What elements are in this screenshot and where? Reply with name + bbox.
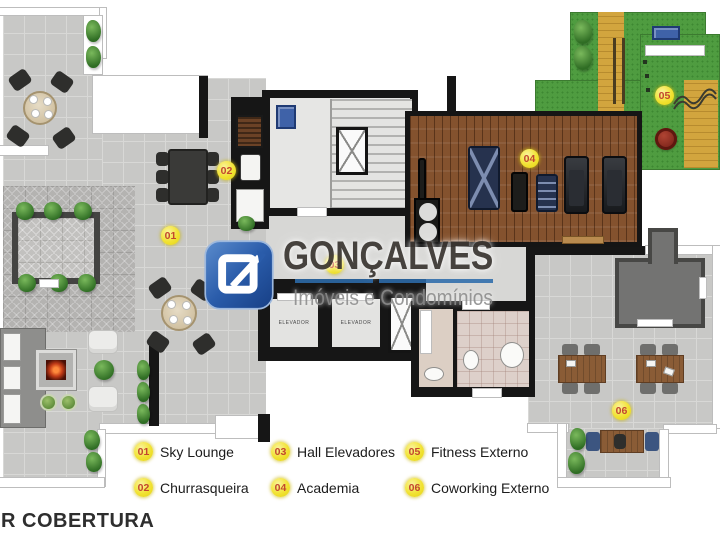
- bush: [574, 46, 592, 70]
- counter-sink: [240, 154, 261, 181]
- appliance: [3, 366, 21, 390]
- chair: [614, 434, 626, 449]
- wall: [526, 247, 535, 309]
- legend-badge-01: 01: [134, 442, 153, 461]
- wall: [646, 46, 704, 55]
- bush: [74, 202, 92, 220]
- legend-label-06: Coworking Externo: [431, 480, 549, 496]
- coworking-desk-2: [636, 355, 684, 383]
- rooftop-structure: [615, 258, 705, 328]
- chair: [645, 432, 659, 451]
- bush: [78, 274, 96, 292]
- chair: [640, 382, 656, 394]
- legend-badge-03: 03: [271, 442, 290, 461]
- legend-item-03: 03 Hall Elevadores: [271, 442, 395, 461]
- page-title: R COBERTURA: [1, 510, 154, 533]
- step-dot: [646, 88, 650, 92]
- marker-number: 02: [221, 165, 233, 177]
- chair: [584, 382, 600, 394]
- brand-underline: [379, 279, 493, 283]
- wall: [258, 414, 270, 442]
- floorplan-canvas: ELEVADOR ELEVADOR: [0, 0, 720, 540]
- parallel-bars: [613, 38, 616, 104]
- plate: [184, 317, 191, 324]
- legend-label-05: Fitness Externo: [431, 444, 528, 460]
- step-dot: [645, 74, 649, 78]
- dumbbell-rack: [418, 158, 426, 202]
- wall: [447, 76, 456, 116]
- roofed-structure: [93, 76, 207, 133]
- marker-number: 04: [524, 153, 536, 165]
- lounge-partition-wall: [149, 344, 159, 426]
- wall: [558, 478, 670, 487]
- legend-item-05: 05 Fitness Externo: [405, 442, 528, 461]
- door-opening: [473, 389, 501, 397]
- window: [638, 320, 672, 326]
- wall: [0, 8, 105, 15]
- legend-item-04: 04 Academia: [271, 478, 359, 497]
- legend-badge-06: 06: [405, 478, 424, 497]
- bush: [84, 430, 100, 450]
- weight-machine-1: [468, 146, 500, 210]
- appliance: [3, 394, 21, 424]
- chair: [662, 382, 678, 394]
- legend-item-01: 01 Sky Lounge: [134, 442, 234, 461]
- plan-marker-05: 05: [655, 86, 674, 105]
- bush: [18, 274, 36, 292]
- plate: [170, 316, 177, 323]
- plate: [168, 301, 175, 308]
- potted-plant: [94, 360, 114, 380]
- wall: [558, 424, 566, 484]
- plan-marker-04: 04: [520, 149, 539, 168]
- legend-label-03: Hall Elevadores: [297, 444, 395, 460]
- plan-marker-02: 02: [217, 161, 236, 180]
- rooftop-structure-chimney: [648, 228, 678, 264]
- exercise-mat: [652, 26, 680, 40]
- training-wheel: [655, 128, 677, 150]
- wall: [713, 246, 720, 428]
- legend-badge-02: 02: [134, 478, 153, 497]
- legend-badge-05: 05: [405, 442, 424, 461]
- bush: [568, 452, 585, 474]
- bush: [574, 20, 592, 44]
- toilet: [424, 367, 444, 381]
- door-opening: [298, 208, 326, 216]
- treadmill-1: [564, 156, 589, 214]
- fire-pit-flame: [46, 360, 66, 380]
- plan-marker-01: 01: [161, 226, 180, 245]
- wall: [664, 425, 716, 433]
- step-dot: [643, 60, 647, 64]
- parallel-bars: [622, 38, 625, 104]
- paper: [566, 360, 576, 367]
- bush: [86, 452, 102, 472]
- legend-item-02: 02 Churrasqueira: [134, 478, 249, 497]
- battle-ropes: [672, 86, 718, 112]
- marker-number: 06: [616, 405, 628, 417]
- plate: [45, 111, 52, 118]
- plate: [183, 302, 190, 309]
- round-table-2: [161, 295, 197, 331]
- paper: [646, 360, 656, 367]
- pouf: [60, 394, 77, 411]
- dining-table: [168, 149, 208, 205]
- toilet: [500, 342, 524, 368]
- planter-label: [40, 280, 58, 287]
- brand-tagline: Imóveis e Condomínios: [293, 285, 493, 311]
- wall: [528, 246, 646, 255]
- garden-path: [598, 12, 624, 122]
- core-wall: [262, 90, 418, 98]
- gym-room: [405, 111, 642, 247]
- wall: [0, 478, 104, 487]
- armchair: [88, 386, 118, 412]
- elevator-2-label: ELEVADOR: [341, 320, 372, 326]
- bathroom-counter: [421, 311, 431, 353]
- window: [700, 278, 706, 298]
- pouf: [40, 394, 57, 411]
- hedge: [137, 404, 150, 424]
- gym-door: [562, 236, 604, 244]
- bush: [570, 428, 586, 450]
- chair: [562, 382, 578, 394]
- entry-mat: [276, 105, 296, 129]
- chair: [586, 432, 600, 451]
- wall: [199, 76, 208, 138]
- bush: [86, 20, 101, 42]
- plate: [32, 110, 39, 117]
- legend-item-06: 06 Coworking Externo: [405, 478, 549, 497]
- marker-number: 01: [165, 230, 177, 242]
- plan-marker-06: 06: [612, 401, 631, 420]
- legend-label-04: Academia: [297, 480, 359, 496]
- bush: [238, 216, 255, 231]
- bbq-grill: [236, 115, 263, 148]
- workout-bench: [511, 172, 528, 212]
- window: [0, 146, 48, 155]
- treadmill-2: [602, 156, 627, 214]
- hedge: [137, 360, 150, 380]
- bush: [16, 202, 34, 220]
- elevator-1-label: ELEVADOR: [279, 320, 310, 326]
- wall: [216, 416, 264, 438]
- brand-underline: [295, 279, 373, 283]
- plate: [30, 96, 37, 103]
- bathroom-sink: [463, 350, 479, 370]
- round-table-1: [23, 91, 57, 125]
- hedge: [137, 382, 150, 402]
- legend-label-02: Churrasqueira: [160, 480, 249, 496]
- bush: [86, 46, 101, 68]
- legend-label-01: Sky Lounge: [160, 444, 234, 460]
- legend-badge-04: 04: [271, 478, 290, 497]
- weight-machine-2: [536, 174, 558, 212]
- bush: [44, 202, 62, 220]
- armchair: [88, 330, 118, 354]
- core-wall: [262, 208, 418, 216]
- appliance: [3, 333, 21, 361]
- plate: [44, 98, 51, 105]
- marker-number: 05: [659, 90, 671, 102]
- goncalves-logo-icon: [203, 239, 275, 311]
- shaft-x-1: [336, 127, 368, 175]
- brand-name: GONÇALVES: [283, 234, 493, 279]
